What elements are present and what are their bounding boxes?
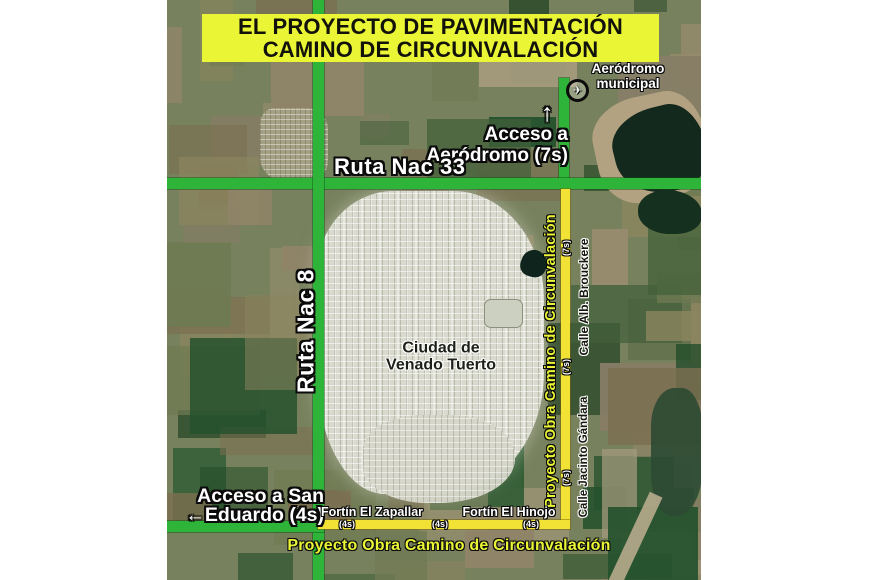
gandara-street-label: Calle Jacinto Gándara — [578, 397, 590, 518]
title-banner: EL PROYECTO DE PAVIMENTACIÓN CAMINO DE C… — [202, 14, 659, 62]
field-patch — [167, 242, 231, 327]
lake-south-arm — [638, 190, 701, 234]
field-patch — [634, 0, 666, 12]
field-patch — [432, 62, 478, 101]
field-patch — [238, 553, 293, 580]
route-marker-7s: (7s) — [561, 359, 571, 375]
stadium-block — [484, 299, 523, 328]
left-arrow-icon: ← — [185, 504, 205, 526]
field-patch — [592, 229, 628, 285]
airplane-icon: ✈ — [573, 84, 582, 97]
ring-road-project-vertical-label: Proyecto Obra Camino de Circunvalación — [543, 214, 559, 508]
infographic-canvas: ✈ Aeródromo municipal ↑ Acceso a Aeródro… — [0, 0, 870, 580]
aerodrome-icon: ✈ — [566, 79, 589, 102]
field-patch — [646, 311, 701, 342]
title-line-1: EL PROYECTO DE PAVIMENTACIÓN — [238, 15, 623, 38]
satellite-map: ✈ Aeródromo municipal ↑ Acceso a Aeródro… — [167, 0, 701, 580]
route-8-label: Ruta Nac 8 — [293, 269, 320, 393]
route-marker-7s: (7s) — [561, 470, 571, 486]
field-patch — [167, 27, 182, 103]
field-patch — [360, 121, 409, 145]
ring-road-project-bottom-label: Proyecto Obra Camino de Circunvalación — [287, 537, 610, 555]
brouckere-street-label: Calle Alb. Brouckere — [577, 239, 591, 356]
fortin-hinojo-label: Fortín El Hinojo — [462, 505, 555, 519]
route-33-label: Ruta Nac 33 — [334, 154, 465, 180]
aerodrome-label: Aeródromo municipal — [588, 62, 668, 91]
route-marker-4s: (4s) — [339, 519, 355, 529]
san-eduardo-access-label: Acceso a San ←Eduardo (4s) — [182, 487, 324, 524]
route-marker-4s: (4s) — [432, 519, 448, 529]
city-area-south — [363, 415, 515, 503]
route-marker-7s: (7s) — [561, 240, 571, 256]
fortin-zapallar-label: Fortín El Zapallar — [321, 505, 423, 519]
title-line-2: CAMINO DE CIRCUNVALACIÓN — [263, 38, 599, 61]
route-marker-4s: (4s) — [523, 519, 539, 529]
city-label: Ciudad de Venado Tuerto — [386, 341, 496, 374]
